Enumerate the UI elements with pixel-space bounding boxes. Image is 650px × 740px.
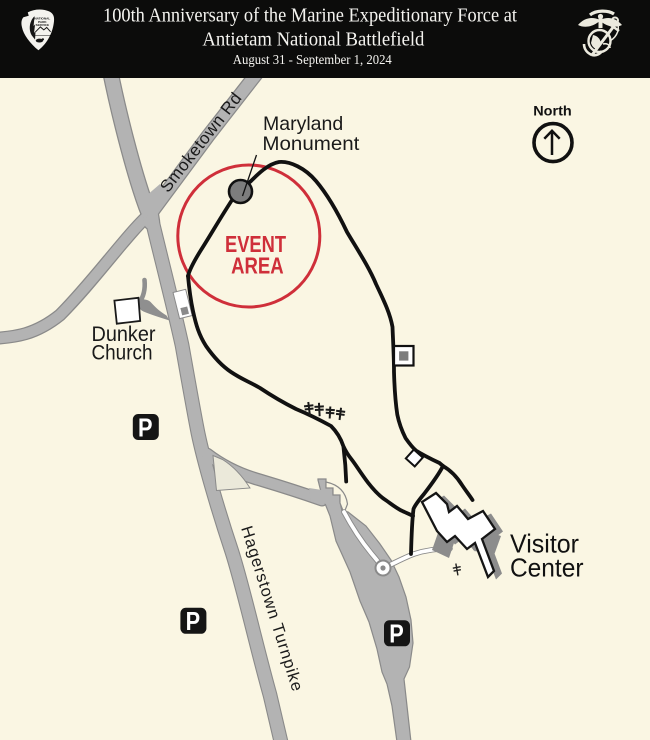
svg-text:Antietam National Battlefield: Antietam National Battlefield: [202, 29, 424, 51]
svg-text:August 31 - September 1, 2024: August 31 - September 1, 2024: [233, 53, 392, 68]
svg-text:P: P: [186, 606, 201, 636]
svg-text:P: P: [389, 619, 404, 649]
svg-text:Maryland: Maryland: [263, 113, 343, 135]
svg-text:Center: Center: [510, 553, 584, 583]
svg-text:P: P: [138, 412, 153, 442]
svg-text:North: North: [533, 104, 572, 119]
svg-text:Church: Church: [92, 342, 153, 365]
svg-text:Monument: Monument: [262, 133, 360, 155]
svg-text:AREA: AREA: [231, 253, 284, 279]
svg-text:100th Anniversary of the Marin: 100th Anniversary of the Marine Expediti…: [103, 5, 517, 27]
svg-text:SERVICE: SERVICE: [36, 23, 50, 27]
